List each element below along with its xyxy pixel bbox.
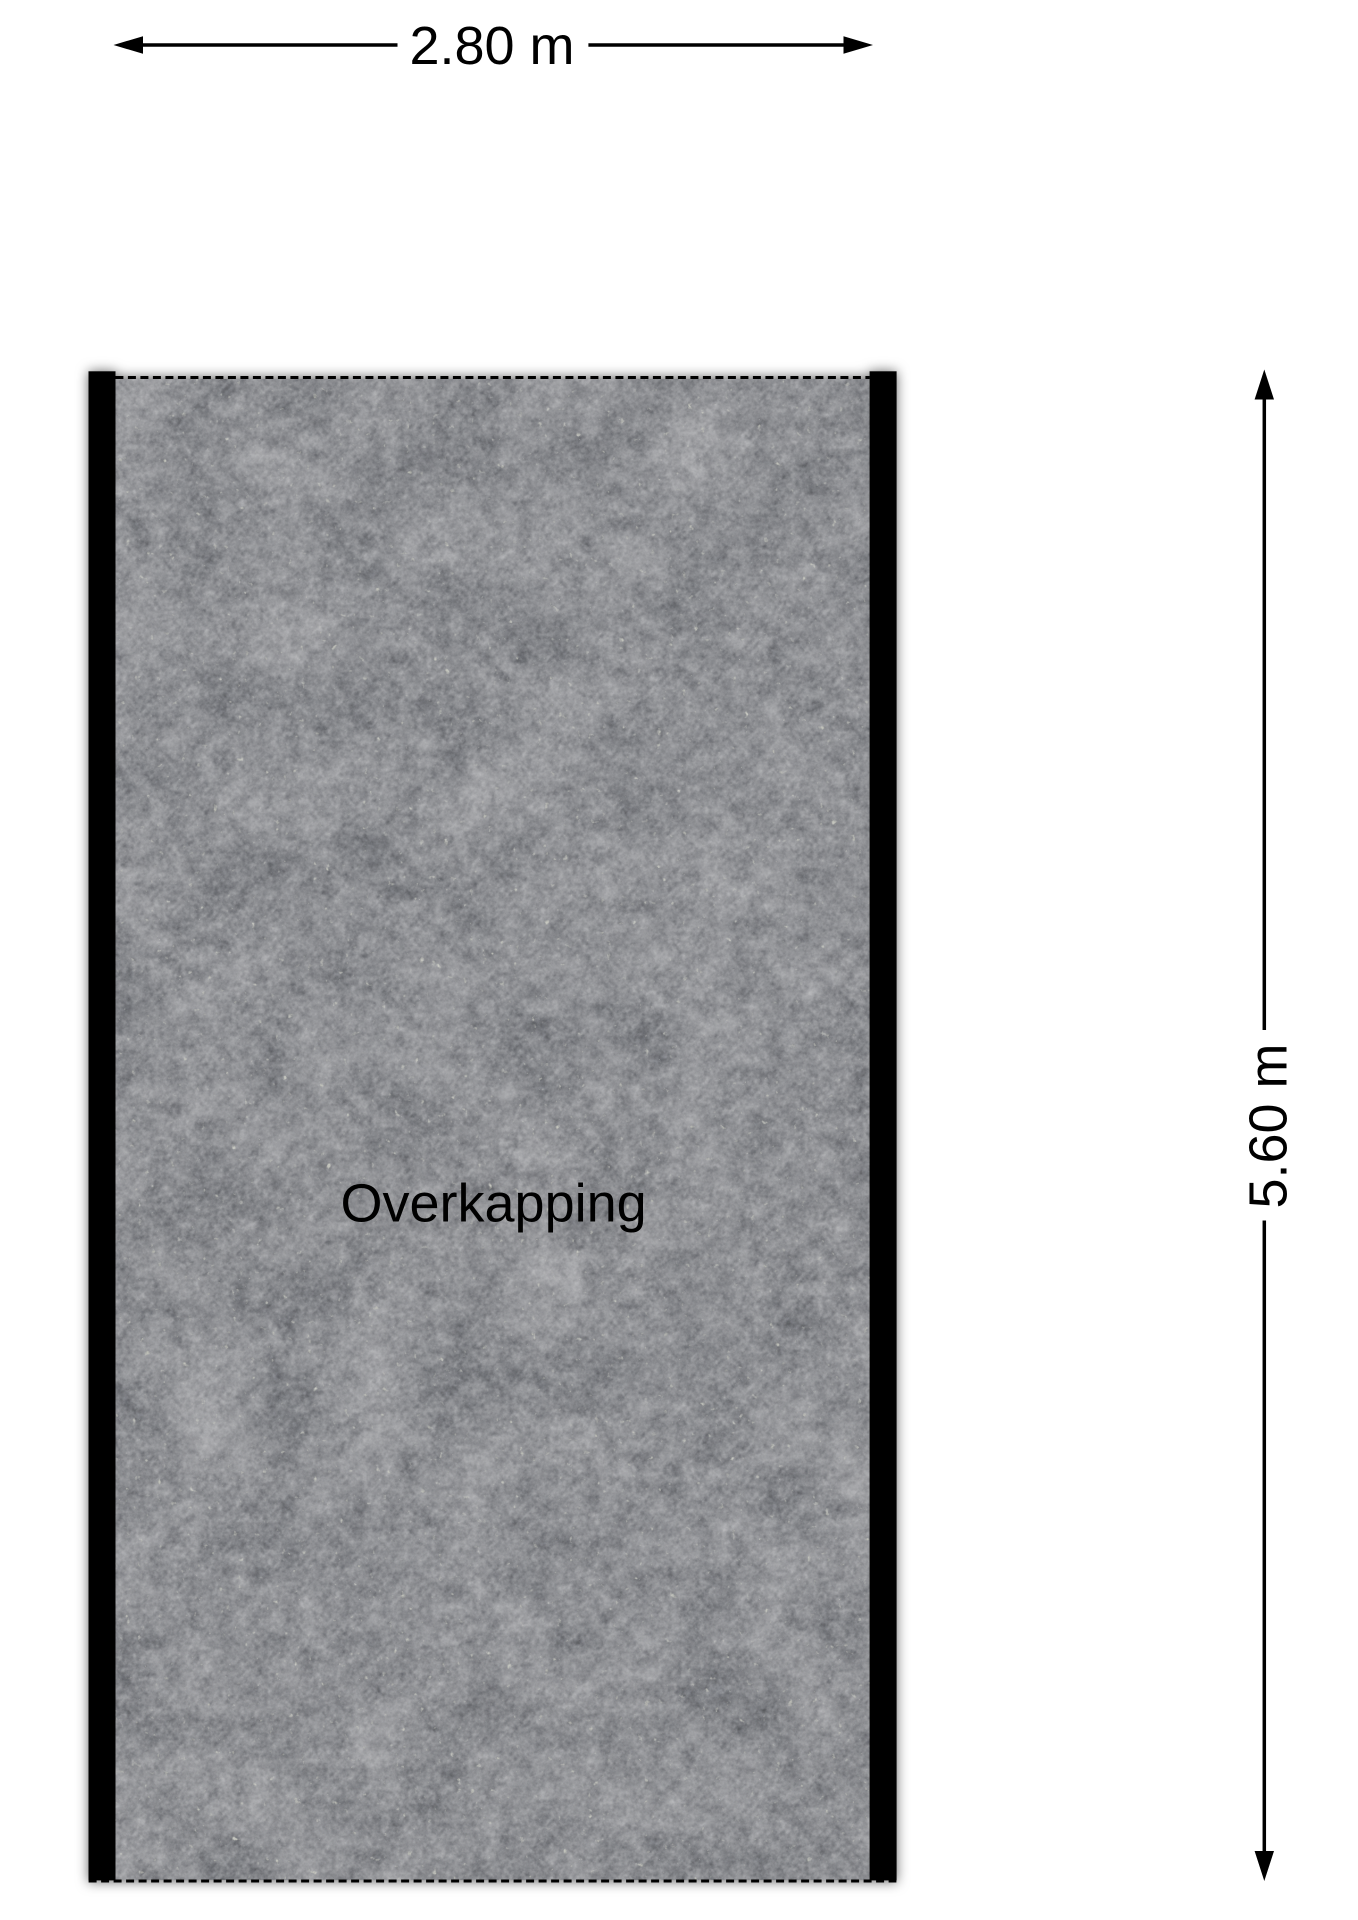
svg-text:Overkapping: Overkapping — [341, 1174, 647, 1234]
svg-text:2.80 m: 2.80 m — [409, 16, 574, 76]
svg-text:5.60 m: 5.60 m — [1239, 1043, 1299, 1208]
